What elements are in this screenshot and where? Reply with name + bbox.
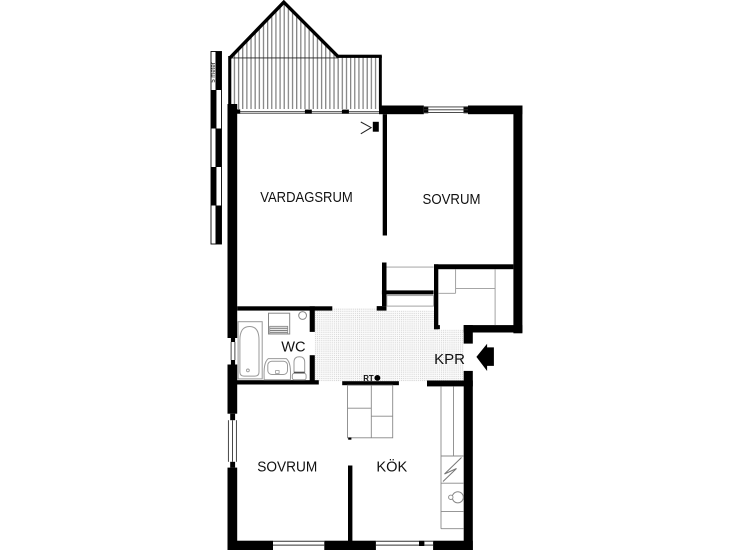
svg-text:SOVRUM: SOVRUM	[423, 192, 481, 208]
svg-text:KPR: KPR	[434, 351, 465, 368]
svg-text:WC: WC	[281, 340, 305, 356]
svg-text:RT: RT	[363, 374, 374, 383]
svg-text:SOVRUM: SOVRUM	[257, 460, 317, 476]
svg-text:VARDAGSRUM: VARDAGSRUM	[260, 190, 353, 206]
svg-text:KÖK: KÖK	[376, 458, 407, 476]
svg-text:5 meter: 5 meter	[211, 62, 217, 82]
